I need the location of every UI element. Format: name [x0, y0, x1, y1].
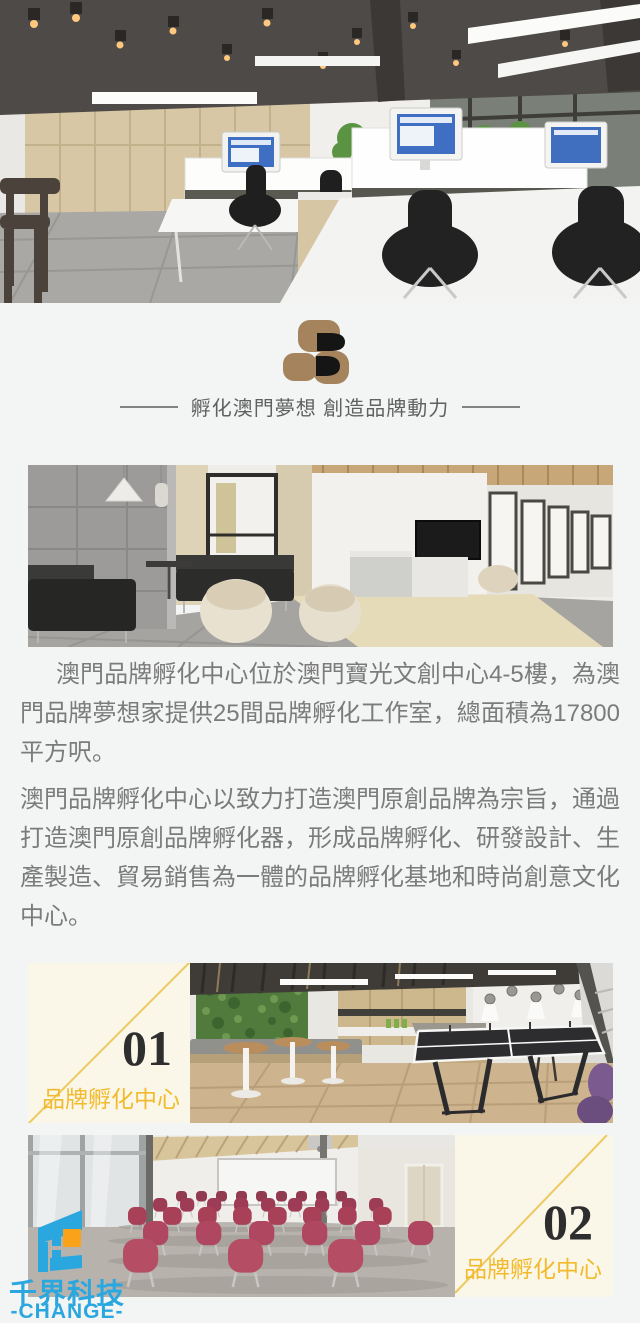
- gallery-label-2: 品牌孵化中心: [464, 1250, 602, 1284]
- reception-lounge-illustration: [28, 465, 613, 647]
- brand-tagline: 孵化澳門夢想 創造品牌動力: [191, 392, 450, 421]
- brand-logo: [283, 320, 349, 386]
- tagline-right-rule: [462, 406, 520, 408]
- recreation-room-photo: [190, 963, 613, 1123]
- hero-photo-open-office: [0, 0, 640, 303]
- watermark-brand-name: -CHANGE-: [0, 1300, 134, 1323]
- tagline-left-rule: [120, 406, 178, 408]
- intro-paragraph-1: 澳門品牌孵化中心位於澳門寶光文創中心4-5樓，為澳門品牌夢想家提供25間品牌孵化…: [20, 655, 620, 772]
- gallery-row-1: 01 品牌孵化中心: [28, 963, 613, 1123]
- intro-paragraph-2: 澳門品牌孵化中心以致力打造澳門原創品牌為宗旨，通過打造澳門原創品牌孵化器，形成品…: [20, 780, 620, 936]
- watermark-logo-icon: [33, 1204, 85, 1274]
- brand-logo-mark: [283, 320, 349, 386]
- intro-text-block: 澳門品牌孵化中心位於澳門寶光文創中心4-5樓，為澳門品牌夢想家提供25間品牌孵化…: [20, 655, 620, 936]
- watermark: 千界科技 -CHANGE-: [0, 1202, 136, 1323]
- gallery-caption-panel-1: 01 品牌孵化中心: [28, 963, 190, 1123]
- recreation-room-illustration: [190, 963, 613, 1123]
- brand-tagline-row: 孵化澳門夢想 創造品牌動力: [0, 392, 640, 421]
- gallery-label-1: 品牌孵化中心: [42, 1080, 180, 1114]
- lounge-photo-reception: [28, 465, 613, 647]
- gallery-caption-panel-2: 02 品牌孵化中心: [455, 1135, 613, 1297]
- gallery-number-1: 01: [122, 1023, 172, 1073]
- article-page: 孵化澳門夢想 創造品牌動力: [0, 0, 640, 1323]
- open-office-illustration: [0, 0, 640, 303]
- gallery-number-2: 02: [543, 1197, 593, 1247]
